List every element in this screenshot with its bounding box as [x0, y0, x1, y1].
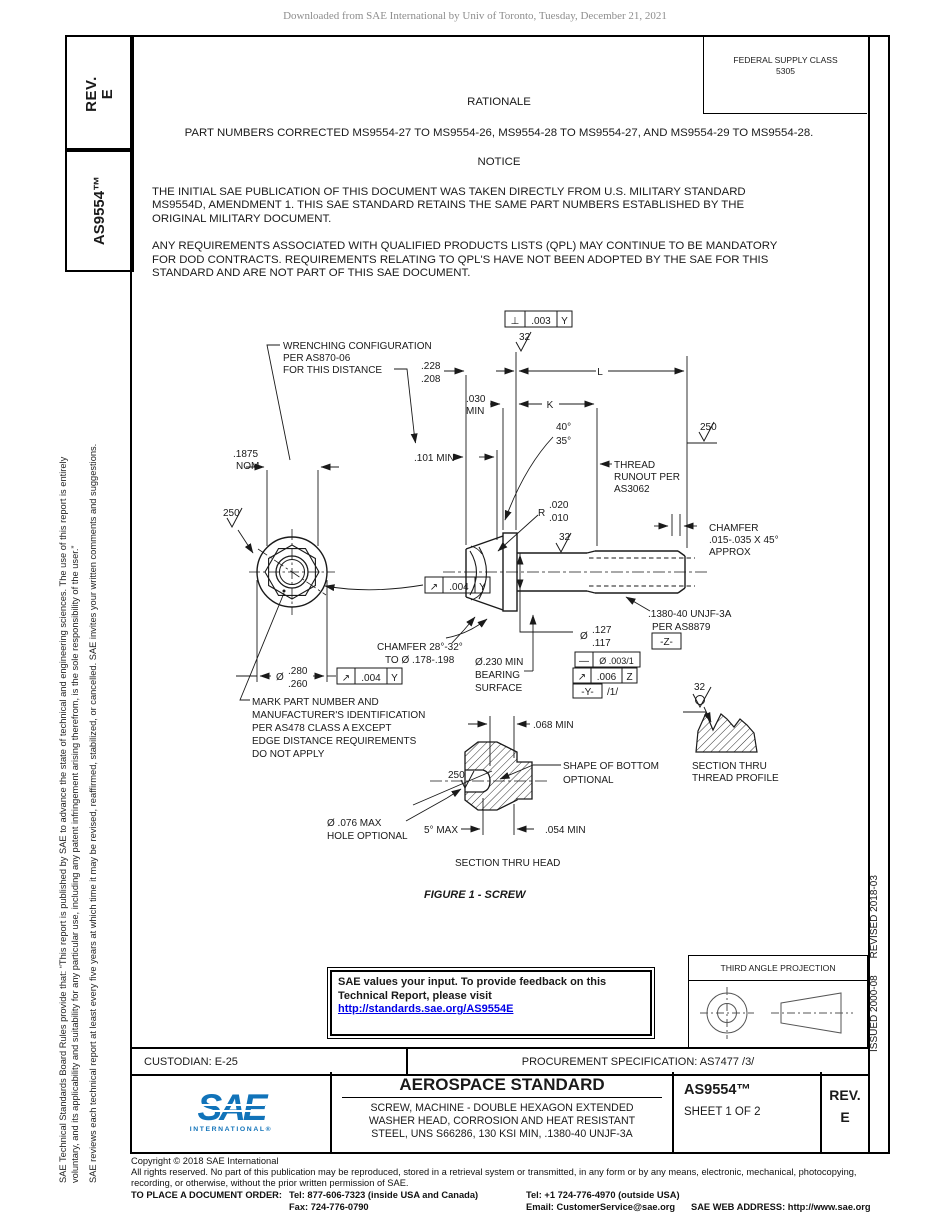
issued-revised-vertical: ISSUED 2000-08 REVISED 2018-03 [869, 752, 880, 1052]
shape-bottom-note: SHAPE OF BOTTOM [563, 761, 659, 772]
radius-label: R [538, 508, 545, 519]
rev-tab-label: REV. [82, 76, 99, 112]
svg-text:.006: .006 [597, 672, 617, 683]
shank-dia: Ø [580, 631, 588, 642]
thread-runout-note: THREAD [614, 460, 655, 471]
dim-L: L [597, 367, 603, 378]
head-dia: Ø [276, 672, 284, 683]
svg-text:EDGE DISTANCE REQUIREMENTS: EDGE DISTANCE REQUIREMENTS [252, 736, 417, 747]
svg-text:MANUFACTURER'S IDENTIFICATION: MANUFACTURER'S IDENTIFICATION [252, 710, 425, 721]
dim-101: .101 MIN [414, 453, 455, 464]
dim-K: K [547, 400, 554, 411]
notice-paragraph-1: THE INITIAL SAE PUBLICATION OF THIS DOCU… [152, 186, 846, 227]
side-view-screw [443, 533, 708, 611]
bearing-note: Ø.230 MIN [475, 657, 523, 668]
fax: Fax: 724-776-0790 [289, 1202, 369, 1213]
title-block: SAE INTERNATIONAL® AEROSPACE STANDARD SC… [130, 1072, 870, 1154]
standard-title-cell: AEROSPACE STANDARD SCREW, MACHINE - DOUB… [332, 1072, 674, 1152]
hole-note: Ø .076 MAX [327, 818, 382, 829]
download-watermark: Downloaded from SAE International by Uni… [0, 10, 950, 22]
doc-number-cell: AS9554™ SHEET 1 OF 2 [674, 1072, 822, 1152]
svg-text:.127: .127 [592, 625, 612, 636]
notice-p2-line2: FOR DOD CONTRACTS. REQUIREMENTS RELATING… [152, 254, 846, 268]
dim-228: .228 [421, 361, 441, 372]
disclaimer-line3: SAE reviews each technical report at lea… [88, 285, 100, 1183]
notice-p1-line3: ORIGINAL MILITARY DOCUMENT. [152, 213, 846, 227]
fcf-runout-front: ↗ [430, 582, 438, 593]
sae-logo: SAE INTERNATIONAL® [132, 1072, 332, 1152]
issued-date: ISSUED 2000-08 [869, 975, 880, 1052]
sheet-label: SHEET 1 OF 2 [684, 1106, 820, 1118]
finish-32-top: 32 [519, 332, 531, 343]
fcf-circular-runout: ↗ [578, 672, 586, 683]
revised-date: REVISED 2018-03 [869, 875, 880, 958]
custodian-cell: CUSTODIAN: E-25 [132, 1049, 408, 1074]
svg-text:NOM: NOM [236, 461, 259, 472]
chamfer-note: CHAMFER [709, 523, 758, 534]
svg-text:DO NOT APPLY: DO NOT APPLY [252, 749, 325, 760]
doc-number-tab: AS9554™ [65, 148, 134, 272]
order-label: TO PLACE A DOCUMENT ORDER: [131, 1190, 282, 1201]
notice-title: NOTICE [152, 156, 846, 170]
rationale-title: RATIONALE [152, 96, 846, 110]
aerospace-standard-heading: AEROSPACE STANDARD [342, 1072, 662, 1098]
feedback-line2: Technical Report, please visit [338, 990, 644, 1004]
dim-054: .054 MIN [545, 825, 586, 836]
svg-text:RUNOUT PER: RUNOUT PER [614, 472, 680, 483]
notice-paragraph-2: ANY REQUIREMENTS ASSOCIATED WITH QUALIFI… [152, 240, 846, 281]
front-view-head [249, 529, 335, 615]
document-page: Downloaded from SAE International by Uni… [0, 0, 950, 1230]
angle-40: 40° [556, 422, 571, 433]
finish-250-section: 250 [448, 770, 465, 781]
fcf-straightness: — [579, 656, 589, 667]
svg-text:PER AS870-06: PER AS870-06 [283, 353, 351, 364]
svg-text:MIN: MIN [466, 406, 484, 417]
svg-text:Ø .003/1: Ø .003/1 [599, 656, 634, 666]
tel-outside: Tel: +1 724-776-4970 (outside USA) [526, 1190, 680, 1201]
feedback-line1: SAE values your input. To provide feedba… [338, 976, 644, 990]
thread-spec: .1380-40 UNJF-3A [648, 609, 732, 620]
svg-text:HOLE OPTIONAL: HOLE OPTIONAL [327, 831, 408, 842]
svg-text:.117: .117 [592, 638, 611, 649]
dim-068: .068 MIN [533, 720, 574, 731]
feedback-link[interactable]: http://standards.sae.org/AS9554E [338, 1003, 513, 1015]
copyright-line: Copyright © 2018 SAE International [131, 1156, 881, 1167]
notice-p1-line1: THE INITIAL SAE PUBLICATION OF THIS DOCU… [152, 186, 846, 200]
rev-label: REV. [822, 1084, 868, 1106]
rationale-notice-block: RATIONALE PART NUMBERS CORRECTED MS9554-… [152, 96, 846, 281]
svg-text:Y: Y [391, 673, 398, 684]
svg-text:BEARING: BEARING [475, 670, 520, 681]
finish-32-shank: 32 [559, 532, 571, 543]
svg-text:APPROX: APPROX [709, 547, 751, 558]
wrenching-note: WRENCHING CONFIGURATION [283, 341, 432, 352]
web-address: SAE WEB ADDRESS: http://www.sae.org [691, 1202, 871, 1213]
doc-number: AS9554™ [684, 1082, 820, 1098]
svg-text:.015-.035 X 45°: .015-.035 X 45° [709, 535, 779, 546]
svg-text:OPTIONAL: OPTIONAL [563, 775, 614, 786]
finish-250-left: 250 [223, 508, 240, 519]
order-info: TO PLACE A DOCUMENT ORDER: Tel: 877-606-… [131, 1190, 881, 1214]
datum-y: -Y- [581, 687, 593, 698]
email: Email: CustomerService@sae.org [526, 1202, 675, 1213]
rationale-body: PART NUMBERS CORRECTED MS9554-27 TO MS95… [152, 127, 846, 141]
svg-text:FOR THIS DISTANCE: FOR THIS DISTANCE [283, 365, 382, 376]
svg-text:SURFACE: SURFACE [475, 683, 523, 694]
svg-text:.208: .208 [421, 374, 441, 385]
svg-text:Y: Y [561, 316, 568, 327]
rev-tab: REV. E [65, 35, 134, 152]
svg-text:AS3062: AS3062 [614, 484, 650, 495]
standard-subtitle: SCREW, MACHINE - DOUBLE HEXAGON EXTENDED… [332, 1098, 672, 1141]
rev-value: E [822, 1106, 868, 1128]
disclaimer-line2: voluntary, and its applicability and sui… [70, 285, 82, 1183]
procurement-cell: PROCUREMENT SPECIFICATION: AS7477 /3/ [408, 1049, 868, 1074]
section-head-label: SECTION THRU HEAD [455, 858, 560, 869]
svg-text:TO Ø .178-.198: TO Ø .178-.198 [385, 655, 455, 666]
section-head-dimensions [406, 716, 561, 835]
svg-text:.020: .020 [549, 500, 569, 511]
svg-text:THREAD PROFILE: THREAD PROFILE [692, 773, 779, 784]
svg-text:35°: 35° [556, 436, 571, 447]
svg-text:PER AS478 CLASS A EXCEPT: PER AS478 CLASS A EXCEPT [252, 723, 392, 734]
angle-5max: 5° MAX [424, 825, 458, 836]
figure-caption: FIGURE 1 - SCREW [424, 889, 527, 901]
third-angle-projection-box: THIRD ANGLE PROJECTION [688, 955, 868, 1049]
doc-number-vertical: AS9554™ [91, 175, 108, 244]
svg-text:.280: .280 [288, 666, 308, 677]
copyright-footer: Copyright © 2018 SAE International All r… [131, 1156, 881, 1214]
rights-line1: All rights reserved. No part of this pub… [131, 1167, 881, 1178]
drawing-labels: WRENCHING CONFIGURATION PER AS870-06 FOR… [223, 316, 779, 901]
svg-text:.004: .004 [361, 673, 381, 684]
svg-text:Z: Z [626, 672, 632, 683]
section-thru-head [413, 742, 548, 810]
section-thru-thread-profile [683, 687, 757, 752]
datum-z: -Z- [660, 637, 673, 648]
svg-text:PER AS8879: PER AS8879 [652, 622, 711, 633]
feature-control-frames [337, 311, 681, 698]
figure-1-screw-drawing: WRENCHING CONFIGURATION PER AS870-06 FOR… [130, 295, 870, 960]
svg-text:.010: .010 [549, 513, 569, 524]
sae-logo-stripes [195, 1100, 264, 1116]
notice-p1-line2: MS9554D, AMENDMENT 1. THIS SAE STANDARD … [152, 199, 846, 213]
dim-1875: .1875 [233, 449, 258, 460]
sae-disclaimer-vertical: SAE Technical Standards Board Rules prov… [58, 285, 100, 1183]
finish-32-thread: 32 [694, 682, 706, 693]
svg-text:.260: .260 [288, 679, 308, 690]
third-angle-projection-symbol [689, 981, 864, 1045]
svg-text:.003: .003 [531, 316, 551, 327]
fcf-runout-dia: ↗ [342, 673, 350, 684]
rev-tab-value: E [98, 88, 115, 99]
fsc-value: 5305 [704, 66, 867, 77]
section-thread-label: SECTION THRU [692, 761, 767, 772]
fsc-label: FEDERAL SUPPLY CLASS [704, 55, 867, 66]
finish-250-right: 250 [700, 422, 717, 433]
third-angle-projection-label: THIRD ANGLE PROJECTION [689, 956, 867, 981]
svg-text:.004: .004 [449, 582, 469, 593]
rights-line2: recording, or otherwise, without the pri… [131, 1178, 881, 1189]
fcf-perpendicularity: ⊥ [511, 316, 520, 327]
feedback-box: SAE values your input. To provide feedba… [327, 967, 655, 1039]
rev-cell: REV. E [822, 1072, 868, 1152]
notice-p2-line3: STANDARD AND ARE NOT PART OF THIS SAE DO… [152, 267, 846, 281]
svg-text:/1/: /1/ [607, 687, 618, 698]
disclaimer-line1: SAE Technical Standards Board Rules prov… [58, 285, 70, 1183]
dim-030: .030 [466, 394, 486, 405]
notice-p2-line1: ANY REQUIREMENTS ASSOCIATED WITH QUALIFI… [152, 240, 846, 254]
svg-text:Y: Y [479, 582, 486, 593]
chamfer-2832-note: CHAMFER 28°-32° [377, 642, 463, 653]
mark-note: MARK PART NUMBER AND [252, 697, 379, 708]
tel-inside: Tel: 877-606-7323 (inside USA and Canada… [289, 1190, 478, 1201]
